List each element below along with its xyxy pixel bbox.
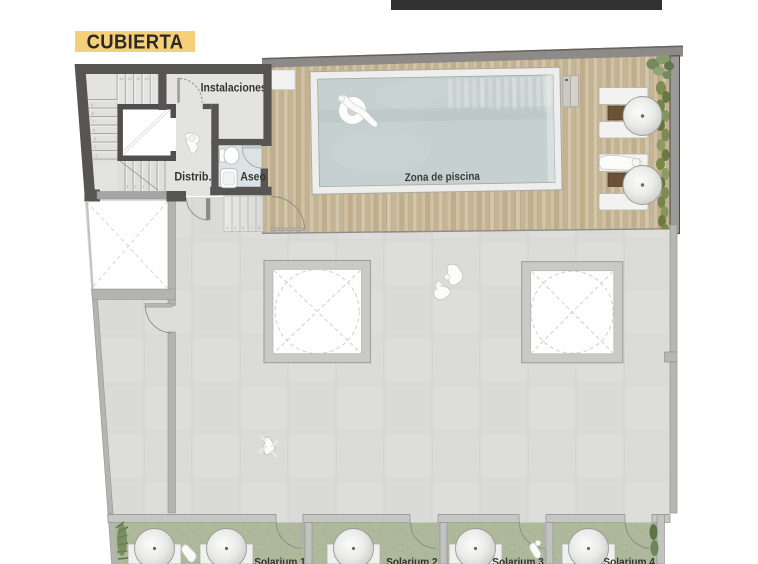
svg-text:Solarium 2: Solarium 2	[386, 556, 438, 564]
svg-text:12: 12	[128, 76, 133, 81]
svg-text:Instalaciones: Instalaciones	[201, 82, 267, 95]
svg-text:Aseo: Aseo	[240, 171, 266, 184]
svg-text:Distrib.: Distrib.	[174, 171, 211, 184]
svg-text:Zona de piscina: Zona de piscina	[405, 170, 481, 184]
svg-text:13: 13	[119, 76, 124, 81]
svg-text:Solarium 4: Solarium 4	[603, 556, 655, 564]
svg-text:Solarium 3: Solarium 3	[492, 556, 544, 564]
svg-text:Solarium 1: Solarium 1	[254, 556, 306, 564]
svg-text:CUBIERTA: CUBIERTA	[87, 31, 184, 54]
svg-text:10: 10	[145, 76, 150, 81]
